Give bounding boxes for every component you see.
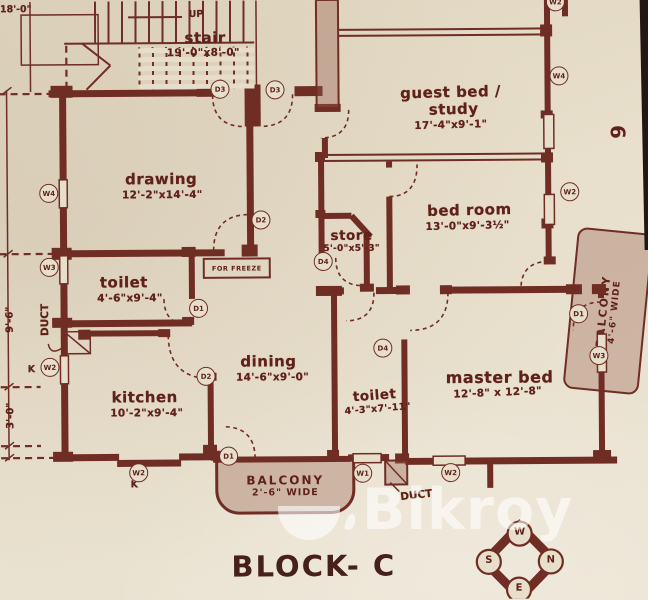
compass-south: S bbox=[481, 555, 497, 569]
room-label-toilet-top: toilet bbox=[74, 273, 174, 292]
for-freeze-shelf: FOR FREEZE bbox=[203, 257, 271, 278]
page-number: 6 bbox=[606, 125, 630, 139]
door-marker: D4 bbox=[373, 339, 392, 358]
room-label-drawing: drawing bbox=[101, 170, 221, 189]
room-dims-toilet-top: 4'-6"x9'-4" bbox=[70, 292, 190, 305]
room-dims-kitchen: 10'-2"x9'-4" bbox=[77, 407, 217, 420]
room-dims-drawing: 12'-2"x14'-4" bbox=[92, 189, 232, 202]
room-label-stair: stair bbox=[155, 28, 255, 47]
block-title: BLOCK- C bbox=[214, 548, 414, 583]
window-marker: W3 bbox=[40, 258, 59, 277]
floorplan-photo: BALCONY 2'-6" WIDE BALCONY 4'-6" WIDE st… bbox=[0, 0, 648, 600]
dim-top-left: 18'-0" bbox=[0, 4, 44, 15]
door-marker: D2 bbox=[251, 210, 270, 229]
stair-up-label: UP bbox=[184, 9, 208, 20]
window-marker: W2 bbox=[40, 358, 59, 377]
dim-left-lower: 3'-0" bbox=[5, 394, 16, 438]
door-marker: D2 bbox=[196, 367, 215, 386]
room-label-dining: dining bbox=[208, 352, 328, 371]
watermark-text: Bikroy bbox=[362, 482, 573, 539]
window-marker: W2 bbox=[560, 182, 579, 201]
door-marker: D3 bbox=[265, 80, 284, 99]
room-label-guest-bed-2: study bbox=[383, 98, 523, 119]
dim-left-upper: 9'-6" bbox=[4, 298, 15, 342]
room-label-bed-room: bed room bbox=[399, 199, 539, 220]
compass-east: E bbox=[511, 583, 527, 597]
room-label-store: store bbox=[311, 228, 391, 245]
duct-label-left: DUCT bbox=[39, 291, 51, 349]
door-marker: D1 bbox=[189, 299, 208, 318]
room-label-kitchen: kitchen bbox=[85, 388, 205, 407]
door-marker: D4 bbox=[314, 252, 333, 271]
k-label-left: K bbox=[24, 364, 38, 375]
door-marker: D1 bbox=[569, 304, 588, 323]
window-marker: W4 bbox=[39, 184, 58, 203]
window-marker: W4 bbox=[549, 66, 568, 85]
door-marker: D1 bbox=[219, 447, 238, 466]
window-marker: W2 bbox=[129, 463, 148, 482]
window-marker: W3 bbox=[589, 346, 608, 365]
compass-north: N bbox=[543, 554, 559, 568]
door-marker: D3 bbox=[210, 80, 229, 99]
room-dims-stair: 19'-0"x8'-0" bbox=[143, 46, 263, 59]
room-dims-dining: 14'-6"x9'-0" bbox=[202, 371, 342, 384]
